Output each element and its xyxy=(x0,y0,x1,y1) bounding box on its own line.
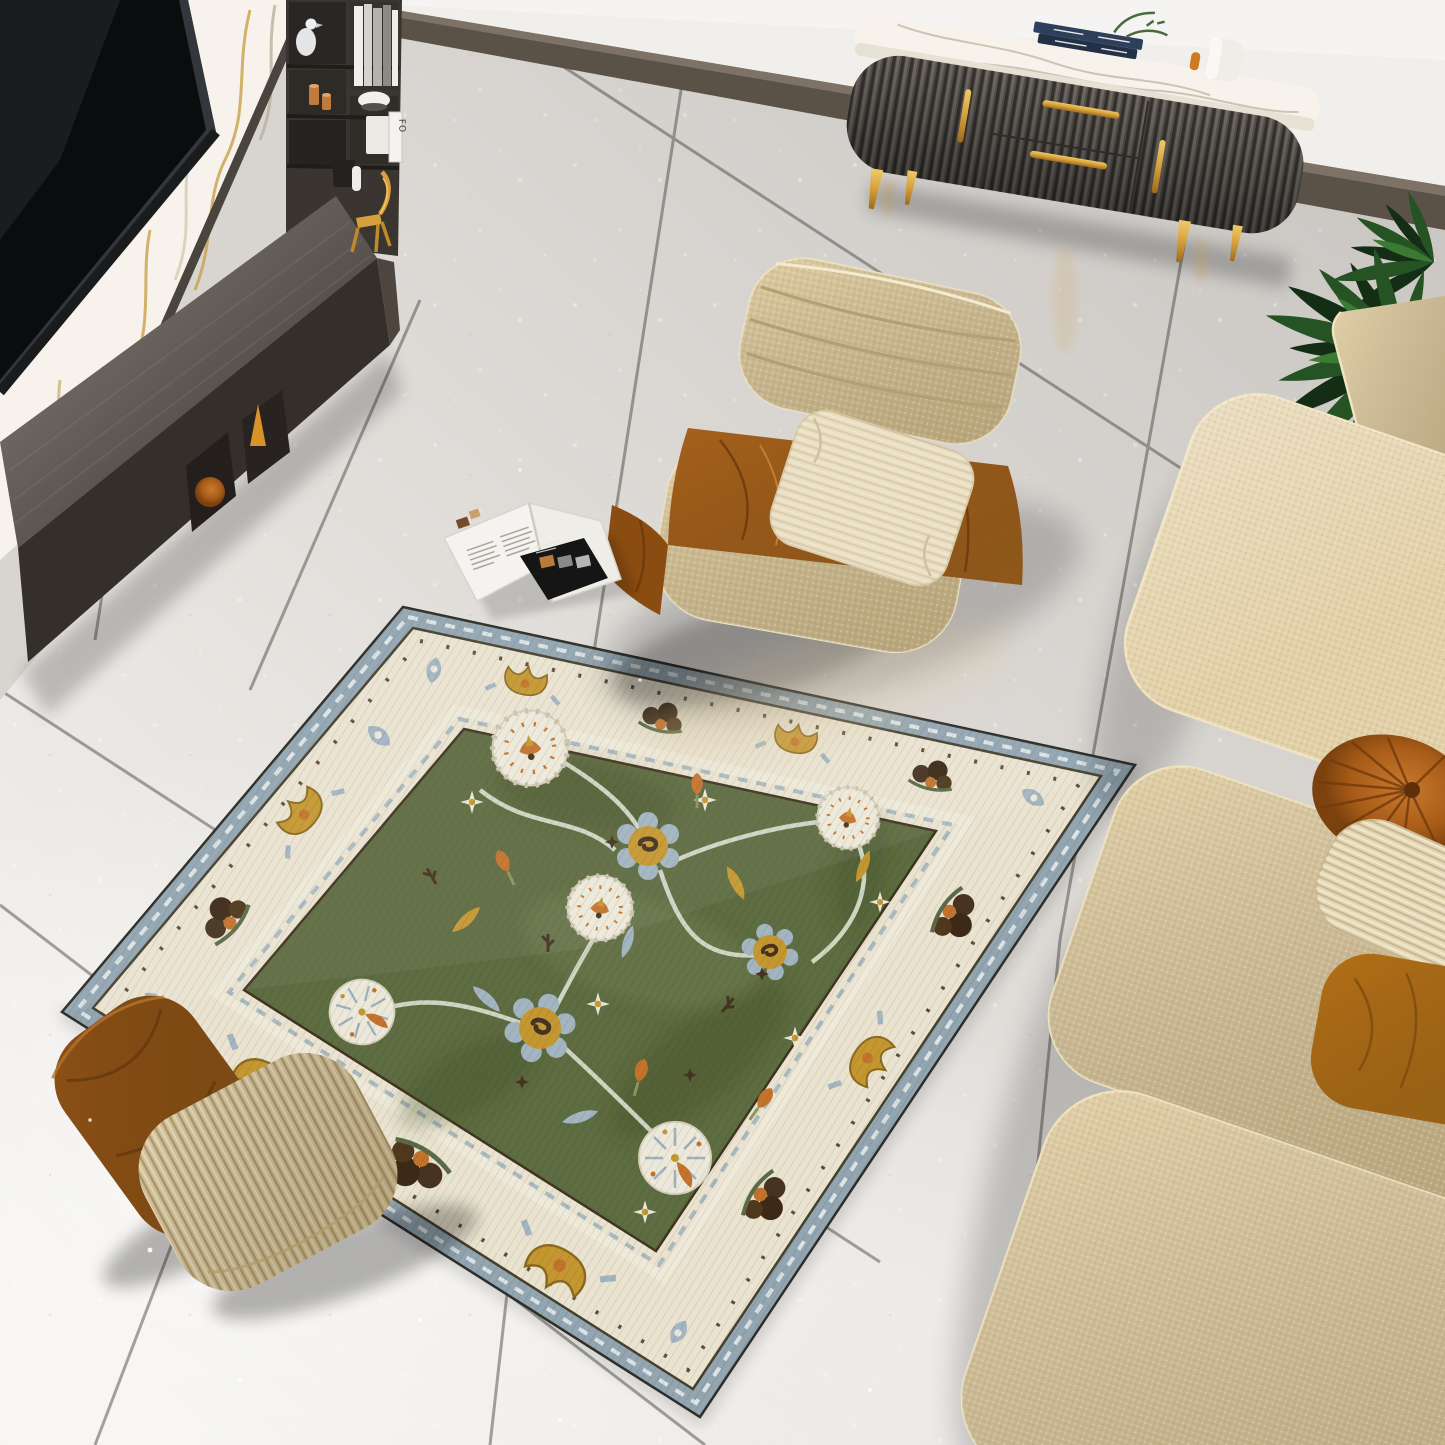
shelf-cubby xyxy=(289,120,346,166)
decor-bowl xyxy=(358,92,390,112)
storage-box xyxy=(366,116,390,154)
living-room-scene: FO xyxy=(0,0,1445,1445)
white-bottle xyxy=(352,166,361,191)
black-planter xyxy=(332,160,355,187)
scene-canvas: FO xyxy=(0,0,1445,1445)
book-spine-label: FO xyxy=(396,119,406,134)
shelf-cubby xyxy=(289,2,346,64)
decor-vase-round xyxy=(195,477,225,507)
